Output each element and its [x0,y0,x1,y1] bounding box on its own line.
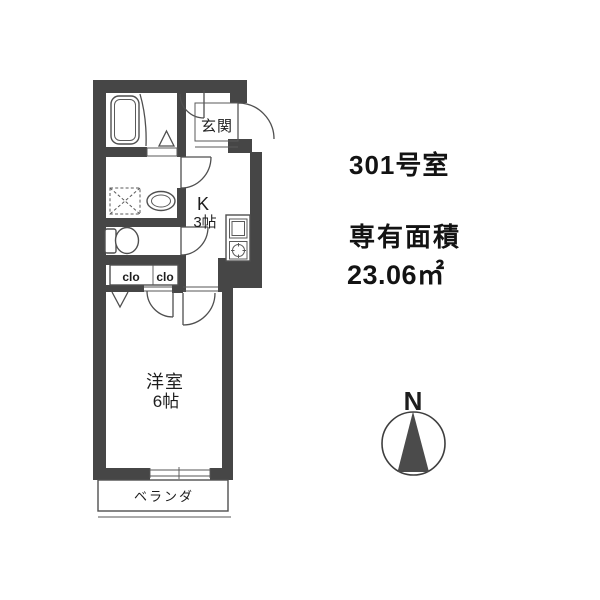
room-labels: 玄関 K 3帖 洋室 6帖 clo clo ベランダ [122,118,233,504]
wall-segment [93,80,247,93]
compass-needle [398,412,430,473]
closet-folding-door-icon [112,292,128,307]
room-number: 301号室 [349,145,449,182]
washroom-door-arc [181,157,211,188]
wall-segment [106,218,186,227]
wall-segment [93,468,150,480]
door-head-line [183,287,218,291]
wall-segment [93,80,106,480]
door-head-line [144,287,172,291]
wall-segment [177,188,186,218]
kitchen-label: K [197,194,209,214]
bedroom-size-label: 6帖 [153,392,179,411]
toilet-door-arc [181,227,208,255]
wall-segment [230,93,247,103]
kitchen-size-label: 3帖 [193,214,216,231]
wall-segment [106,285,144,292]
wall-segment [106,147,147,157]
compass-icon: N [382,386,445,475]
wall-segment [218,285,233,292]
wall-segment [222,285,233,480]
bedroom-window-icon [150,467,210,479]
washing-machine-pan-icon [110,188,140,214]
wall-segment [250,152,262,262]
wall-segment [93,255,186,265]
closet-right-label: clo [156,270,173,284]
balcony-label: ベランダ [134,489,194,504]
bath-threshold [147,148,177,156]
entrance-label: 玄関 [201,118,233,135]
entry-door-arc [238,103,274,139]
closet-left-label: clo [122,270,139,284]
wall-segment [218,258,262,288]
floorplan-page: 玄関 K 3帖 洋室 6帖 clo clo ベランダ N 301号室 専有面積 … [0,0,600,600]
floor-plan: 玄関 K 3帖 洋室 6帖 clo clo ベランダ N [0,0,600,600]
closet-door-arc [147,291,173,317]
area-label: 専有面積 [349,217,461,254]
bedroom-label: 洋室 [146,372,184,392]
bath-door-triangle-icon [159,131,174,146]
washbasin-icon [147,192,175,211]
toilet-icon [105,228,139,254]
area-value: 23.06㎡ [347,253,445,292]
bedroom-door-arc [183,293,215,325]
wall-segment [210,468,233,480]
bath-folding-door-icon [140,94,146,146]
kitchen-counter-icon [226,215,250,261]
